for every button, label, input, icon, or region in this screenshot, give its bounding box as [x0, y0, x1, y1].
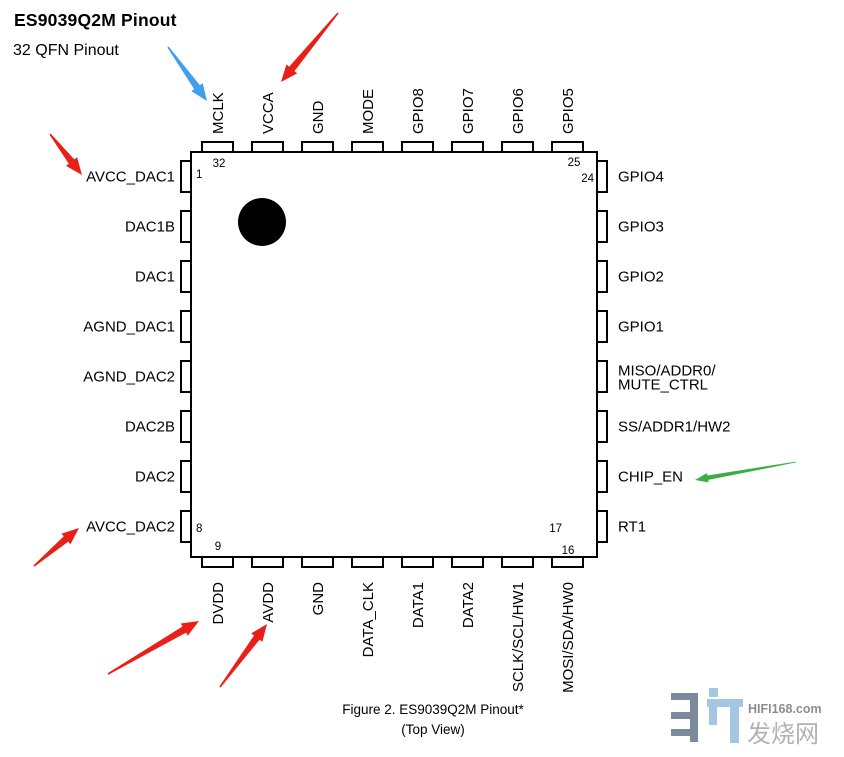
pin-stub-left [181, 511, 191, 542]
pin-stub-right [597, 461, 607, 492]
pin-stub-top [402, 142, 433, 152]
figure-caption: Figure 2. ES9039Q2M Pinout* [342, 702, 524, 717]
pin-stub-top [302, 142, 333, 152]
pin-label-top: GPIO8 [410, 88, 427, 134]
watermark-name-text: 发烧网 [747, 721, 819, 748]
pin-label-left: DAC1B [125, 219, 175, 236]
pin-number-8: 8 [196, 523, 202, 535]
pin-number-32: 32 [213, 158, 226, 170]
pin-stub-right [597, 261, 607, 292]
pin-stub-bottom [252, 557, 283, 567]
green-arrow-chip-en [695, 462, 796, 483]
pin-label-bottom: SCLK/SCL/HW1 [510, 582, 527, 692]
figure-caption-view: (Top View) [401, 722, 465, 737]
watermark-logo: HIFI168.com 发烧网 [650, 672, 844, 757]
pin-stub-bottom [352, 557, 383, 567]
pin-stub-left [181, 361, 191, 392]
pin-label-bottom: DATA1 [410, 582, 427, 628]
pin-stub-top [352, 142, 383, 152]
pin-label-top: GPIO7 [460, 88, 477, 134]
pin-stub-top [252, 142, 283, 152]
pin-stub-right [597, 411, 607, 442]
pin-label-right: RT1 [618, 519, 646, 536]
pin-number-9: 9 [215, 541, 221, 553]
pin-stub-right [597, 361, 607, 392]
pin-stub-bottom [502, 557, 533, 567]
pin-label-bottom: MOSI/SDA/HW0 [560, 582, 577, 693]
pin-stub-bottom [302, 557, 333, 567]
pin-label-top: MCLK [210, 92, 227, 134]
watermark-glyph-right [707, 688, 743, 743]
pin-stub-left [181, 161, 191, 192]
pin-label-top: VCCA [260, 92, 277, 134]
pin-label-top: GND [310, 101, 327, 135]
pin-number-1: 1 [196, 169, 202, 181]
red-arrow-vcca [281, 13, 339, 83]
pin-stub-top [502, 142, 533, 152]
pin-label-right: GPIO3 [618, 219, 664, 236]
pin-label-right: GPIO2 [618, 269, 664, 286]
pin-label-bottom: DVDD [210, 582, 227, 625]
blue-arrow-mclk [167, 47, 207, 102]
pin-label-bottom: DATA2 [460, 582, 477, 628]
red-arrow-avdd [219, 624, 267, 688]
pin-stub-bottom [452, 557, 483, 567]
pin-number-24: 24 [581, 173, 594, 185]
pin-label-right: SS/ADDR1/HW2 [618, 419, 731, 436]
watermark-site-text: HIFI168.com [748, 702, 822, 716]
pin-stub-right [597, 161, 607, 192]
pin-label-left: AGND_DAC1 [83, 319, 175, 336]
pin-label-bottom: DATA_CLK [360, 582, 377, 657]
pin-number-16: 16 [562, 545, 575, 557]
red-arrow-avcc-dac2 [34, 528, 80, 567]
pin1-indicator-dot [238, 198, 286, 246]
pin-stub-left [181, 461, 191, 492]
pin-stub-left [181, 311, 191, 342]
pin-label-right: GPIO1 [618, 319, 664, 336]
pin-number-17: 17 [549, 523, 562, 535]
pin-number-25: 25 [568, 157, 581, 169]
pin-label-left: AGND_DAC2 [83, 369, 175, 386]
pin-label-left: AVCC_DAC1 [86, 169, 175, 186]
pin-stub-right [597, 311, 607, 342]
pin-label-right: CHIP_EN [618, 469, 683, 486]
pin-label-left: AVCC_DAC2 [86, 519, 175, 536]
pin-label-right: GPIO4 [618, 169, 664, 186]
watermark-glyph-left [671, 693, 698, 742]
pinout-figure: ES9039Q2M Pinout 32 QFN Pinout MCLKVCCAG… [0, 0, 844, 757]
pin-label-bottom: GND [310, 582, 327, 616]
pin-label-left: DAC2B [125, 419, 175, 436]
pin-label-top: GPIO6 [510, 88, 527, 134]
pin-label-left: DAC1 [135, 269, 175, 286]
red-arrow-dvdd [108, 621, 199, 675]
pin-stub-bottom [202, 557, 233, 567]
pin-label-right: MISO/ADDR0/MUTE_CTRL [618, 363, 716, 394]
pin-stub-bottom [402, 557, 433, 567]
pin-stub-top [202, 142, 233, 152]
pin-stub-left [181, 211, 191, 242]
pin-stub-left [181, 261, 191, 292]
pin-label-bottom: AVDD [260, 582, 277, 623]
pin-stub-right [597, 211, 607, 242]
pin-stub-bottom [552, 557, 583, 567]
pin-stub-top [452, 142, 483, 152]
pin-stub-right [597, 511, 607, 542]
pin-label-left: DAC2 [135, 469, 175, 486]
pin-label-top: GPIO5 [560, 88, 577, 134]
chip-pinout-diagram: MCLKVCCAGNDMODEGPIO8GPIO7GPIO6GPIO5DVDDA… [0, 0, 844, 757]
pin-stub-left [181, 411, 191, 442]
pin-stub-top [552, 142, 583, 152]
red-arrow-avcc-dac1 [49, 134, 82, 176]
pin-label-top: MODE [360, 89, 377, 134]
